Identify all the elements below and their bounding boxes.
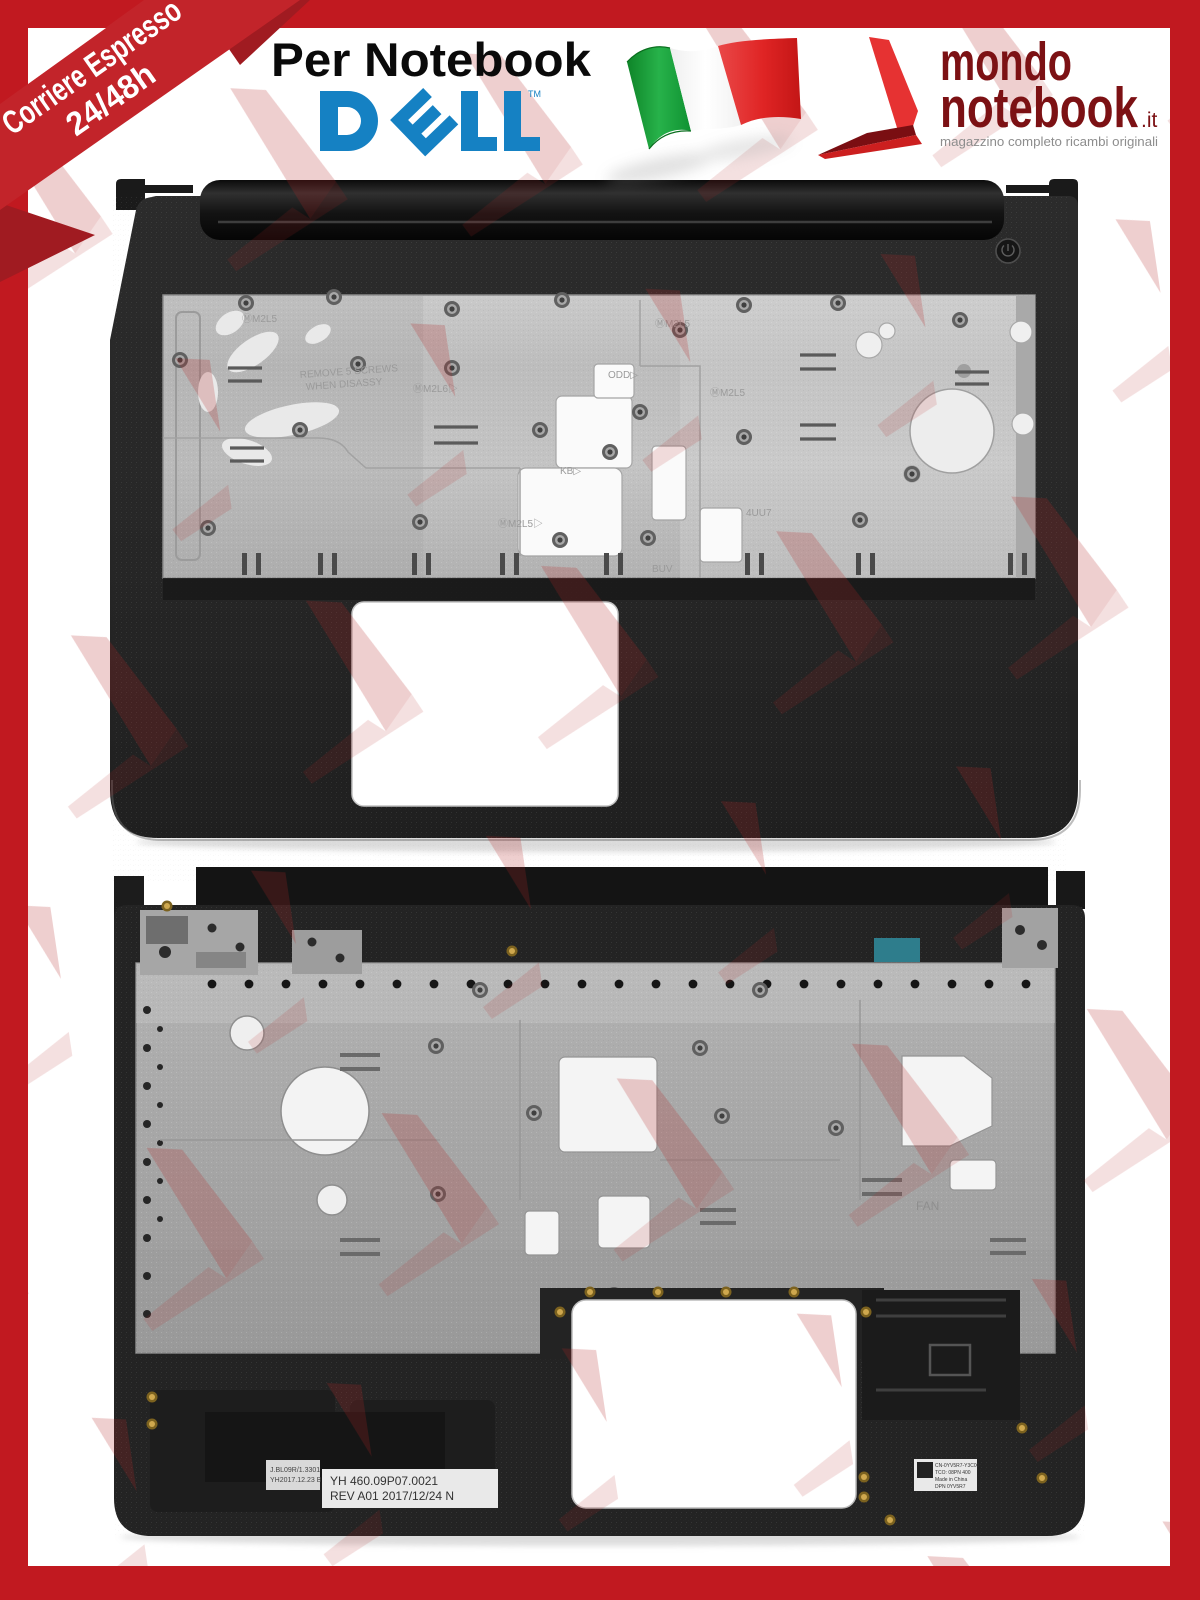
svg-text:TM: TM (528, 89, 541, 99)
svg-text:.it: .it (1141, 109, 1158, 132)
svg-text:magazzino completo ricambi ori: magazzino completo ricambi originali (940, 134, 1158, 149)
svg-text:Per Notebook: Per Notebook (271, 33, 592, 86)
svg-text:notebook: notebook (940, 76, 1138, 140)
